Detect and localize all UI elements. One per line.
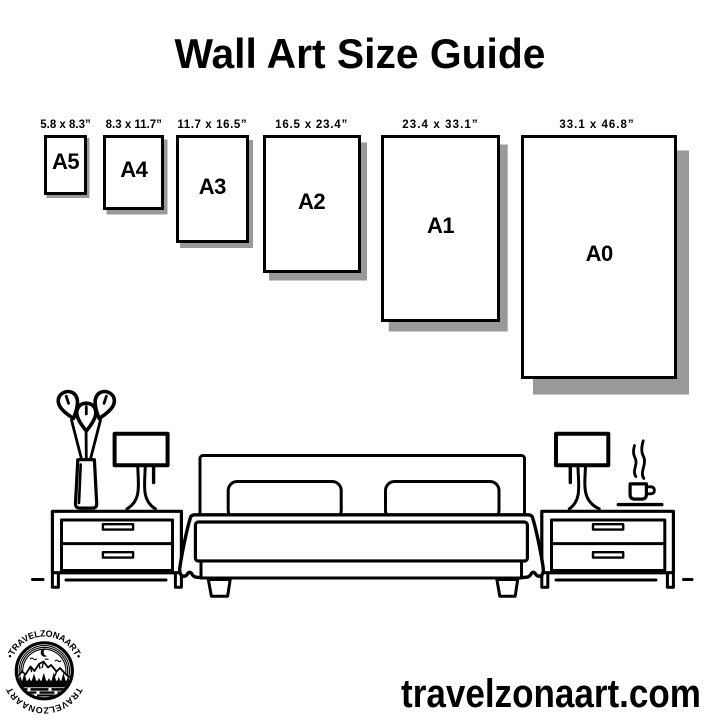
svg-text:•TRAVELZONAART•: •TRAVELZONAART• — [0, 0, 84, 715]
